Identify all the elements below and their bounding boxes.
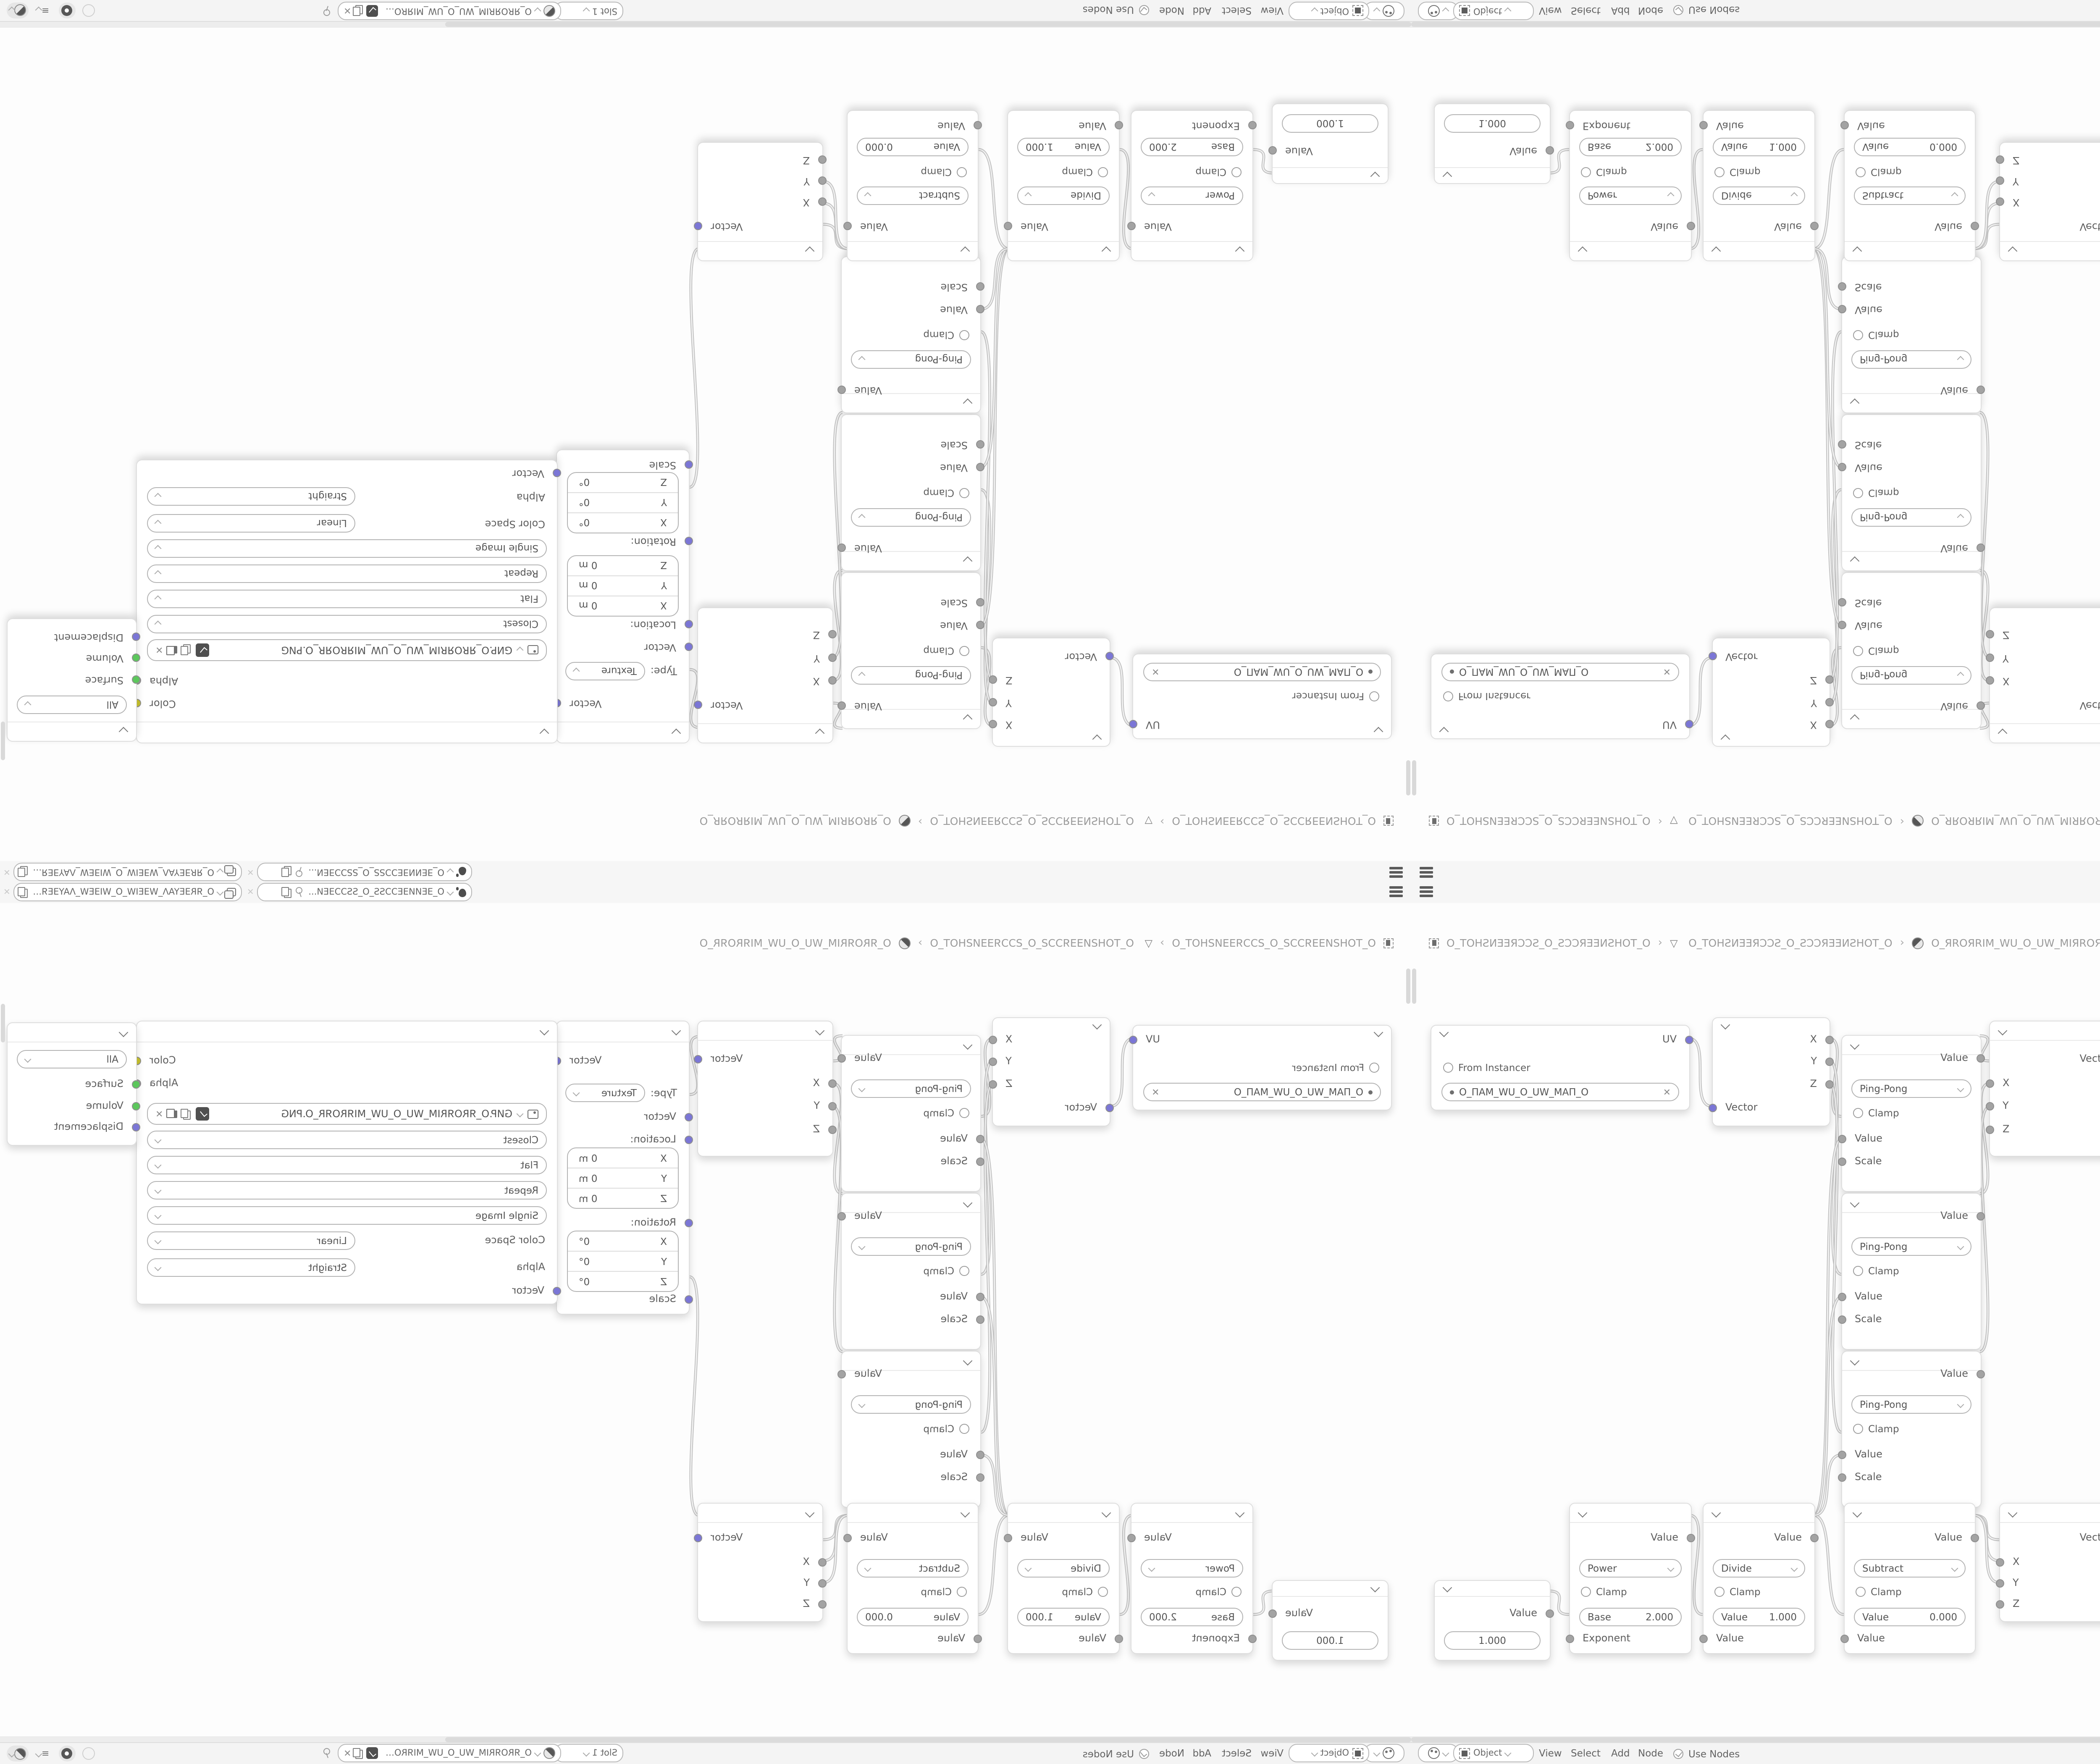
checkbox-icon[interactable] [1231,1587,1242,1597]
uv-map-name-field[interactable]: O_ПAM_WU_O_UW_MAП_O ✕ [1143,663,1381,681]
fake-user-shield-icon[interactable] [196,643,209,657]
unlink-scene-icon[interactable]: ✕ [247,867,254,877]
uv-map-name-field[interactable]: O_ПAM_WU_O_UW_MAП_O ✕ [1143,1083,1381,1101]
checkbox-icon[interactable] [1581,1587,1591,1597]
copy-icon[interactable] [20,887,28,897]
left-scrollbar[interactable] [1406,969,1410,1004]
operation-dropdown[interactable]: Power [1579,186,1682,205]
clamp-checkbox[interactable]: Clamp [1856,1585,1902,1599]
mapping-node[interactable]: Vector Type: Texture Vector Location: X0… [556,1021,690,1315]
from-instancer-checkbox[interactable]: From Instancer [1443,690,1530,703]
divide-node[interactable]: Value Divide Clamp Value1.000 Value [1703,110,1815,261]
checkbox-icon[interactable] [959,646,969,656]
checkbox-icon[interactable] [1853,488,1863,498]
collapse-icon[interactable] [961,247,970,256]
menu-add[interactable]: Add [1192,1747,1211,1759]
clamp-checkbox[interactable]: Clamp [923,1264,969,1278]
value-field[interactable]: Value0.000 [1854,138,1966,156]
scene-field[interactable]: O_ƎEИИƎEƆƆSS_O_SSƆƆƎEИ... [257,883,472,901]
checkbox-icon[interactable] [957,167,967,177]
operation-dropdown[interactable]: Ping-Pong [851,508,971,527]
clamp-checkbox[interactable]: Clamp [1714,165,1761,179]
collapse-icon[interactable] [815,729,825,738]
use-nodes-checkbox[interactable]: Use Nodes [1083,1747,1149,1761]
exponent-input-socket[interactable] [1566,1634,1574,1643]
node-editor-canvas[interactable]: O_TOHƧИƎƎЯƆƆƧ_O_ƧƆƆЯƎƎИƧHOT_O › ▽ O_TOHƧ… [1411,28,2100,861]
operation-dropdown[interactable]: Divide [1713,186,1805,205]
left-scrollbar[interactable] [1412,969,1416,1004]
collapse-icon[interactable] [1853,1508,1862,1518]
location-fields[interactable]: X0 m Y0 m Z0 m [567,555,679,617]
unlink-view-layer-icon[interactable]: ✕ [3,887,10,897]
y-output-socket[interactable] [1825,1057,1834,1066]
operation-dropdown[interactable]: Power [1141,1559,1243,1578]
left-scrollbar[interactable] [1406,760,1410,795]
operation-dropdown[interactable]: Ping-Pong [851,1237,971,1256]
output-target-dropdown[interactable]: All [17,1050,127,1068]
value-output-socket[interactable] [1004,1533,1012,1542]
clamp-checkbox[interactable]: Clamp [1856,165,1902,179]
operation-dropdown[interactable]: Subtract [1854,186,1966,205]
checkbox-icon[interactable] [959,1266,969,1276]
math-node-2[interactable]: Value Ping-Pong Clamp Value Scale [1841,1193,1982,1350]
right-scrollbar[interactable] [1,722,5,760]
vector-input-socket[interactable] [1709,652,1717,661]
value-field[interactable]: Value1.000 [1017,138,1110,156]
menu-node[interactable]: Node [1638,5,1663,17]
divide-node[interactable]: Value Divide Clamp Value1.000 Value [1007,110,1120,261]
horizontal-scrollbar[interactable] [0,21,1411,28]
value-input-socket[interactable] [1838,463,1846,472]
value-field[interactable]: Value1.000 [1017,1608,1110,1626]
copy-icon[interactable] [283,887,291,897]
collapse-icon[interactable] [1102,247,1111,256]
collapse-icon[interactable] [2008,247,2018,256]
checkbox-icon[interactable] [1369,691,1379,701]
fake-user-shield-icon[interactable] [196,1107,209,1121]
separate-xyz-node[interactable]: X Y Z Vector [1712,638,1830,747]
value-node[interactable]: Value 1.000 [1272,103,1389,184]
collapse-icon[interactable] [1235,1508,1245,1518]
scale-input-socket[interactable] [1838,1157,1846,1165]
collapse-icon[interactable] [805,1508,815,1518]
checkbox-icon[interactable] [1856,1587,1866,1597]
unlink-icon[interactable]: ✕ [344,6,351,16]
collapse-icon[interactable] [672,729,681,738]
value-output-socket[interactable] [837,544,846,552]
vector-output-socket[interactable] [694,1055,702,1063]
menu-hamburger-icon[interactable] [1420,866,1433,878]
from-instancer-checkbox[interactable]: From Instancer [1292,690,1379,703]
checkbox-icon[interactable] [1443,691,1453,701]
x-input-socket[interactable] [818,1558,827,1566]
base-field[interactable]: Base2.000 [1141,1608,1243,1626]
alpha-mode-dropdown[interactable]: Straight [147,1258,355,1277]
collapse-icon[interactable] [1850,1040,1860,1050]
menu-select[interactable]: Select [1222,1747,1252,1759]
collapse-icon[interactable] [1102,1508,1111,1518]
value-input-socket[interactable] [1838,1292,1846,1301]
operation-dropdown[interactable]: Ping-Pong [1851,1237,1971,1256]
copy-icon[interactable] [20,867,28,877]
operation-dropdown[interactable]: Ping-Pong [1851,350,1971,369]
vector-input-socket[interactable] [1709,1103,1717,1112]
value-output-socket[interactable] [837,702,846,710]
vector-input-socket[interactable] [553,1286,561,1295]
math-node-1[interactable]: Value Ping-Pong Clamp Value Scale [1841,572,1982,729]
pin-icon[interactable] [323,1748,333,1758]
math-node-2[interactable]: Value Ping-Pong Clamp Value Scale [1841,414,1982,571]
value-output-socket[interactable] [1977,1212,1985,1220]
collapse-icon[interactable] [963,399,973,408]
combine-xyz-node-1[interactable]: Vector X Y Z [697,1021,833,1157]
value-output-socket[interactable] [1127,1533,1136,1542]
clamp-checkbox[interactable]: Clamp [1581,165,1627,179]
collapse-icon[interactable] [2008,1508,2018,1518]
subtract-node[interactable]: Value Subtract Clamp Value0.000 Value [1844,1503,1976,1654]
unlink-icon[interactable]: ✕ [344,1748,351,1758]
scale-input-socket[interactable] [976,1157,984,1165]
checkbox-icon[interactable] [1714,1587,1725,1597]
collapse-icon[interactable] [963,1040,973,1050]
y-input-socket[interactable] [1986,1102,1994,1110]
image-file-field[interactable]: GИP.O_ЯROЯRIM_WU_O_UW_MIЯROЯR_O.PNG ✕ [147,639,547,661]
unlink-icon[interactable]: ✕ [155,646,163,655]
value-field[interactable]: Value0.000 [1854,1608,1966,1626]
collapse-icon[interactable] [815,1026,825,1036]
menu-view[interactable]: View [1260,5,1284,17]
clamp-checkbox[interactable]: Clamp [923,328,969,342]
checkbox-icon[interactable] [1098,1587,1108,1597]
snapping-button[interactable] [59,1746,76,1761]
value-output-socket[interactable] [1977,1054,1985,1062]
proportional-edit-button[interactable] [81,1746,97,1761]
z-output-socket[interactable] [989,676,997,684]
value-output-socket[interactable] [1004,222,1012,231]
scale-input-socket[interactable] [976,1473,984,1481]
checkbox-icon[interactable] [959,330,969,340]
shading-button[interactable] [7,1746,29,1761]
z-output-socket[interactable] [989,1080,997,1088]
value-input-socket[interactable] [976,1134,984,1143]
subtract-node[interactable]: Value Subtract Clamp Value0.000 Value [1844,110,1976,261]
subtract-node[interactable]: Value Subtract Clamp Value0.000 Value [847,1503,979,1654]
collapse-icon[interactable] [963,1198,973,1208]
y-output-socket[interactable] [989,1057,997,1066]
math-node-1[interactable]: Value Ping-Pong Clamp Value Scale [1841,1035,1982,1192]
clamp-checkbox[interactable]: Clamp [923,1106,969,1120]
collapse-icon[interactable] [1850,399,1860,408]
clamp-checkbox[interactable]: Clamp [923,486,969,500]
menu-node[interactable]: Node [1159,1747,1184,1759]
clamp-checkbox[interactable]: Clamp [1853,1422,1899,1436]
x-input-socket[interactable] [1986,1079,1994,1087]
unlink-scene-icon[interactable]: ✕ [247,887,254,897]
operation-dropdown[interactable]: Divide [1017,186,1110,205]
power-node[interactable]: Value Power Clamp Base2.000 Exponent [1131,110,1253,261]
location-input-socket[interactable] [685,1135,693,1144]
uv-output-socket[interactable] [1129,720,1137,729]
clear-icon[interactable]: ✕ [1152,1087,1159,1097]
use-nodes-checkbox[interactable]: Use Nodes [1673,3,1740,17]
combine-xyz-node-2[interactable]: Vector X Y Z [697,142,823,261]
menu-select[interactable]: Select [1222,5,1252,17]
checkbox-icon[interactable] [1673,5,1683,15]
clamp-checkbox[interactable]: Clamp [1195,165,1242,179]
clamp-checkbox[interactable]: Clamp [921,165,967,179]
value-input-socket[interactable] [976,1292,984,1301]
scene-name[interactable]: O_ƎEИИƎEƆƆSS_O_SSƆƆƎEИ... [308,867,444,877]
x-output-socket[interactable] [1825,1035,1834,1044]
menu-hamburger-icon[interactable] [1389,886,1403,898]
right-scrollbar[interactable] [1,1004,5,1042]
exponent-input-socket[interactable] [1248,1634,1257,1643]
value-input-socket[interactable] [1838,1134,1846,1143]
checkbox-icon[interactable] [1853,1108,1863,1118]
fake-user-shield-icon[interactable] [366,5,378,17]
value-node[interactable]: Value 1.000 [1272,1580,1389,1661]
z-input-socket[interactable] [828,1125,837,1134]
base-field[interactable]: Base2.000 [1579,1608,1682,1626]
volume-input-socket[interactable] [132,1102,140,1110]
collapse-icon[interactable] [119,727,129,737]
value-output-socket[interactable] [1977,1370,1985,1378]
clamp-checkbox[interactable]: Clamp [1853,1264,1899,1278]
value-output-socket[interactable] [1546,1609,1554,1617]
editor-type-button[interactable] [1418,2,1458,20]
value-output-socket[interactable] [837,386,846,394]
checkbox-icon[interactable] [1853,1424,1863,1434]
material-output-node[interactable]: All Surface Volume Displacement [7,618,137,742]
location-fields[interactable]: X0 m Y0 m Z0 m [567,1147,679,1209]
checkbox-icon[interactable] [1581,167,1591,177]
clamp-checkbox[interactable]: Clamp [1853,1106,1899,1120]
source-dropdown[interactable]: Single Image [147,539,547,558]
z-output-socket[interactable] [1825,1080,1834,1088]
collapse-icon[interactable] [1578,1508,1588,1518]
overlays-button[interactable]: ≡ [32,3,54,18]
y-input-socket[interactable] [818,1579,827,1587]
menu-node[interactable]: Node [1159,5,1184,17]
value-output-socket[interactable] [1268,1609,1277,1617]
collapse-icon[interactable] [963,714,973,724]
color-space-dropdown[interactable]: Linear [147,1231,355,1250]
scale-input-socket[interactable] [1838,598,1846,607]
node-editor-canvas[interactable]: O_TOHƧИƎƎЯƆƆƧ_O_ƧƆƆЯƎƎИƧHOT_O › ▽ O_TOHƧ… [0,903,1411,1736]
collapse-icon[interactable] [1235,247,1245,256]
z-input-socket[interactable] [1996,156,2004,164]
alpha-mode-dropdown[interactable]: Straight [147,487,355,506]
value-input-socket[interactable] [1115,1634,1123,1643]
clamp-checkbox[interactable]: Clamp [1062,165,1108,179]
clear-icon[interactable]: ✕ [1152,667,1159,677]
value-output-socket[interactable] [837,1370,846,1378]
scrollbar-thumb[interactable] [445,22,1411,27]
collapse-icon[interactable] [672,1026,681,1036]
separate-xyz-node[interactable]: X Y Z Vector [992,638,1110,747]
value-output-socket[interactable] [837,1212,846,1220]
clear-icon[interactable]: ✕ [1663,667,1671,677]
checkbox-icon[interactable] [1139,5,1149,15]
divide-node[interactable]: Value Divide Clamp Value1.000 Value [1703,1503,1815,1654]
projection-dropdown[interactable]: Flat [147,1156,547,1174]
source-dropdown[interactable]: Single Image [147,1206,547,1225]
x-output-socket[interactable] [989,1035,997,1044]
y-output-socket[interactable] [989,698,997,707]
use-nodes-checkbox[interactable]: Use Nodes [1673,1747,1740,1761]
pin-icon[interactable] [323,6,333,16]
collapse-icon[interactable] [1998,1026,2008,1036]
mapping-type-dropdown[interactable]: Texture [565,662,645,680]
z-input-socket[interactable] [1986,630,1994,639]
from-instancer-checkbox[interactable]: From Instancer [1292,1061,1379,1074]
collapse-icon[interactable] [119,1028,129,1037]
math-node-3[interactable]: Value Ping-Pong Clamp Value Scale [841,256,981,413]
operation-dropdown[interactable]: Ping-Pong [1851,666,1971,685]
collapse-icon[interactable] [1850,556,1860,566]
y-input-socket[interactable] [828,1102,837,1110]
y-input-socket[interactable] [1996,177,2004,185]
base-field[interactable]: Base2.000 [1141,138,1243,156]
value-input-socket[interactable] [1699,121,1708,130]
checkbox-icon[interactable] [1853,1266,1863,1276]
unlink-icon[interactable]: ✕ [155,1109,163,1118]
material-output-node[interactable]: All Surface Volume Displacement [7,1022,137,1146]
clamp-checkbox[interactable]: Clamp [1853,644,1899,658]
z-input-socket[interactable] [1986,1125,1994,1134]
clear-icon[interactable]: ✕ [1663,1087,1671,1097]
clamp-checkbox[interactable]: Clamp [1714,1585,1761,1599]
x-input-socket[interactable] [1996,1558,2004,1566]
checkbox-icon[interactable] [1853,330,1863,340]
collapse-icon[interactable] [1998,729,2008,738]
math-node-1[interactable]: Value Ping-Pong Clamp Value Scale [841,572,981,729]
operation-dropdown[interactable]: Ping-Pong [1851,508,1971,527]
value-field[interactable]: 1.000 [1444,114,1541,133]
rotation-fields[interactable]: X0° Y0° Z0° [567,1231,679,1292]
combine-xyz-node-1[interactable]: Vector X Y Z [1989,607,2100,743]
unlink-view-layer-icon[interactable]: ✕ [3,867,10,877]
combine-xyz-node-2[interactable]: Vector X Y Z [697,1503,823,1622]
operation-dropdown[interactable]: Ping-Pong [1851,1395,1971,1414]
operation-dropdown[interactable]: Subtract [857,186,969,205]
uv-map-name-field[interactable]: O_ПAM_WU_O_UW_MAП_O ✕ [1441,1083,1679,1101]
value-node[interactable]: Value 1.000 [1434,103,1551,184]
vector-output-socket[interactable] [694,1533,702,1542]
collapse-icon[interactable] [540,1026,549,1036]
scene-name[interactable]: O_ƎEИИƎEƆƆSS_O_SSƆƆƎEИ... [308,887,444,897]
checkbox-icon[interactable] [1856,167,1866,177]
x-input-socket[interactable] [1986,677,1994,685]
vector-input-socket[interactable] [1105,1103,1114,1112]
collapse-icon[interactable] [540,729,549,738]
slot-dropdown[interactable]: Slot 1 [554,2,623,20]
editor-type-button[interactable] [1418,1744,1458,1762]
shading-button[interactable] [7,3,29,18]
shader-type-dropdown[interactable]: Object [1453,1744,1534,1762]
combine-xyz-node-2[interactable]: Vector X Y Z [1999,142,2100,261]
exponent-input-socket[interactable] [1566,121,1574,130]
z-input-socket[interactable] [818,1600,827,1608]
copy-icon[interactable] [182,645,191,655]
value-input-socket[interactable] [1840,1634,1849,1643]
menu-node[interactable]: Node [1638,1747,1663,1759]
copy-icon[interactable] [182,1109,191,1119]
scrollbar-thumb[interactable] [445,1737,1411,1742]
collapse-icon[interactable] [961,1508,970,1518]
collapse-icon[interactable] [963,1356,973,1366]
value-input-socket[interactable] [1840,121,1849,130]
use-nodes-checkbox[interactable]: Use Nodes [1083,3,1149,17]
menu-add[interactable]: Add [1192,5,1211,17]
node-editor-canvas[interactable]: O_TOHƧИƎƎЯƆƆƧ_O_ƧƆƆЯƎƎИƧHOT_O › ▽ O_TOHƧ… [0,28,1411,861]
power-node[interactable]: Value Power Clamp Base2.000 Exponent [1569,110,1692,261]
value-input-socket[interactable] [1838,305,1846,314]
uv-map-name-field[interactable]: O_ПAM_WU_O_UW_MAП_O ✕ [1441,663,1679,681]
vector-output-socket[interactable] [694,222,702,231]
scrollbar-thumb[interactable] [1411,1737,2100,1742]
value-field[interactable]: 1.000 [1282,114,1378,133]
color-space-dropdown[interactable]: Linear [147,514,355,533]
power-node[interactable]: Value Power Clamp Base2.000 Exponent [1131,1503,1253,1654]
view-layer-field[interactable]: O_ЯRƎEYAΛ_WƎEIW_O_WIƎEW_ΛAYƎEЯR_O [14,863,242,881]
menu-hamburger-icon[interactable] [1389,866,1403,878]
menu-view[interactable]: View [1539,5,1562,17]
vector-input-socket[interactable] [685,1113,693,1121]
duplicate-image-icon[interactable] [168,645,177,655]
z-input-socket[interactable] [1996,1600,2004,1608]
collapse-icon[interactable] [1443,172,1452,181]
math-node-3[interactable]: Value Ping-Pong Clamp Value Scale [1841,1351,1982,1508]
y-input-socket[interactable] [1996,1579,2004,1587]
base-field[interactable]: Base2.000 [1579,138,1682,156]
value-output-socket[interactable] [843,222,852,231]
x-input-socket[interactable] [1996,198,2004,206]
collapse-icon[interactable] [1370,1583,1380,1593]
collapse-icon[interactable] [1092,735,1102,744]
collapse-icon[interactable] [1850,1356,1860,1366]
pin-icon[interactable] [295,887,305,897]
material-field[interactable]: O_ЯROЯRIM_WU_O_UW_MIЯROЯR_O ✕ [338,2,561,20]
value-input-socket[interactable] [976,1450,984,1459]
extension-dropdown[interactable]: Repeat [147,1181,547,1200]
displacement-input-socket[interactable] [132,1123,140,1131]
clamp-checkbox[interactable]: Clamp [923,1422,969,1436]
scene-field[interactable]: O_ƎEИИƎEƆƆSS_O_SSƆƆƎEИ... [257,863,472,881]
operation-dropdown[interactable]: Ping-Pong [851,666,971,685]
collapse-icon[interactable] [963,556,973,566]
shader-type-dropdown[interactable]: Object [1289,1744,1369,1762]
operation-dropdown[interactable]: Subtract [1854,1559,1966,1578]
node-editor-canvas[interactable]: O_TOHƧИƎƎЯƆƆƧ_O_ƧƆƆЯƎƎИƧHOT_O › ▽ O_TOHƧ… [1411,903,2100,1736]
collapse-icon[interactable] [1711,247,1721,256]
divide-node[interactable]: Value Divide Clamp Value1.000 Value [1007,1503,1120,1654]
combine-xyz-node-1[interactable]: Vector X Y Z [697,607,833,743]
vector-output-socket[interactable] [694,701,702,709]
scale-input-socket[interactable] [1838,283,1846,291]
x-output-socket[interactable] [989,720,997,729]
power-node[interactable]: Value Power Clamp Base2.000 Exponent [1569,1503,1692,1654]
proportional-edit-button[interactable] [81,3,97,18]
value-node[interactable]: Value 1.000 [1434,1580,1551,1661]
collapse-icon[interactable] [1578,247,1588,256]
duplicate-image-icon[interactable] [168,1109,177,1119]
value-field[interactable]: 1.000 [1444,1631,1541,1650]
checkbox-icon[interactable] [959,1108,969,1118]
value-input-socket[interactable] [1699,1634,1708,1643]
menu-select[interactable]: Select [1571,1747,1601,1759]
editor-type-button[interactable] [1364,2,1404,20]
